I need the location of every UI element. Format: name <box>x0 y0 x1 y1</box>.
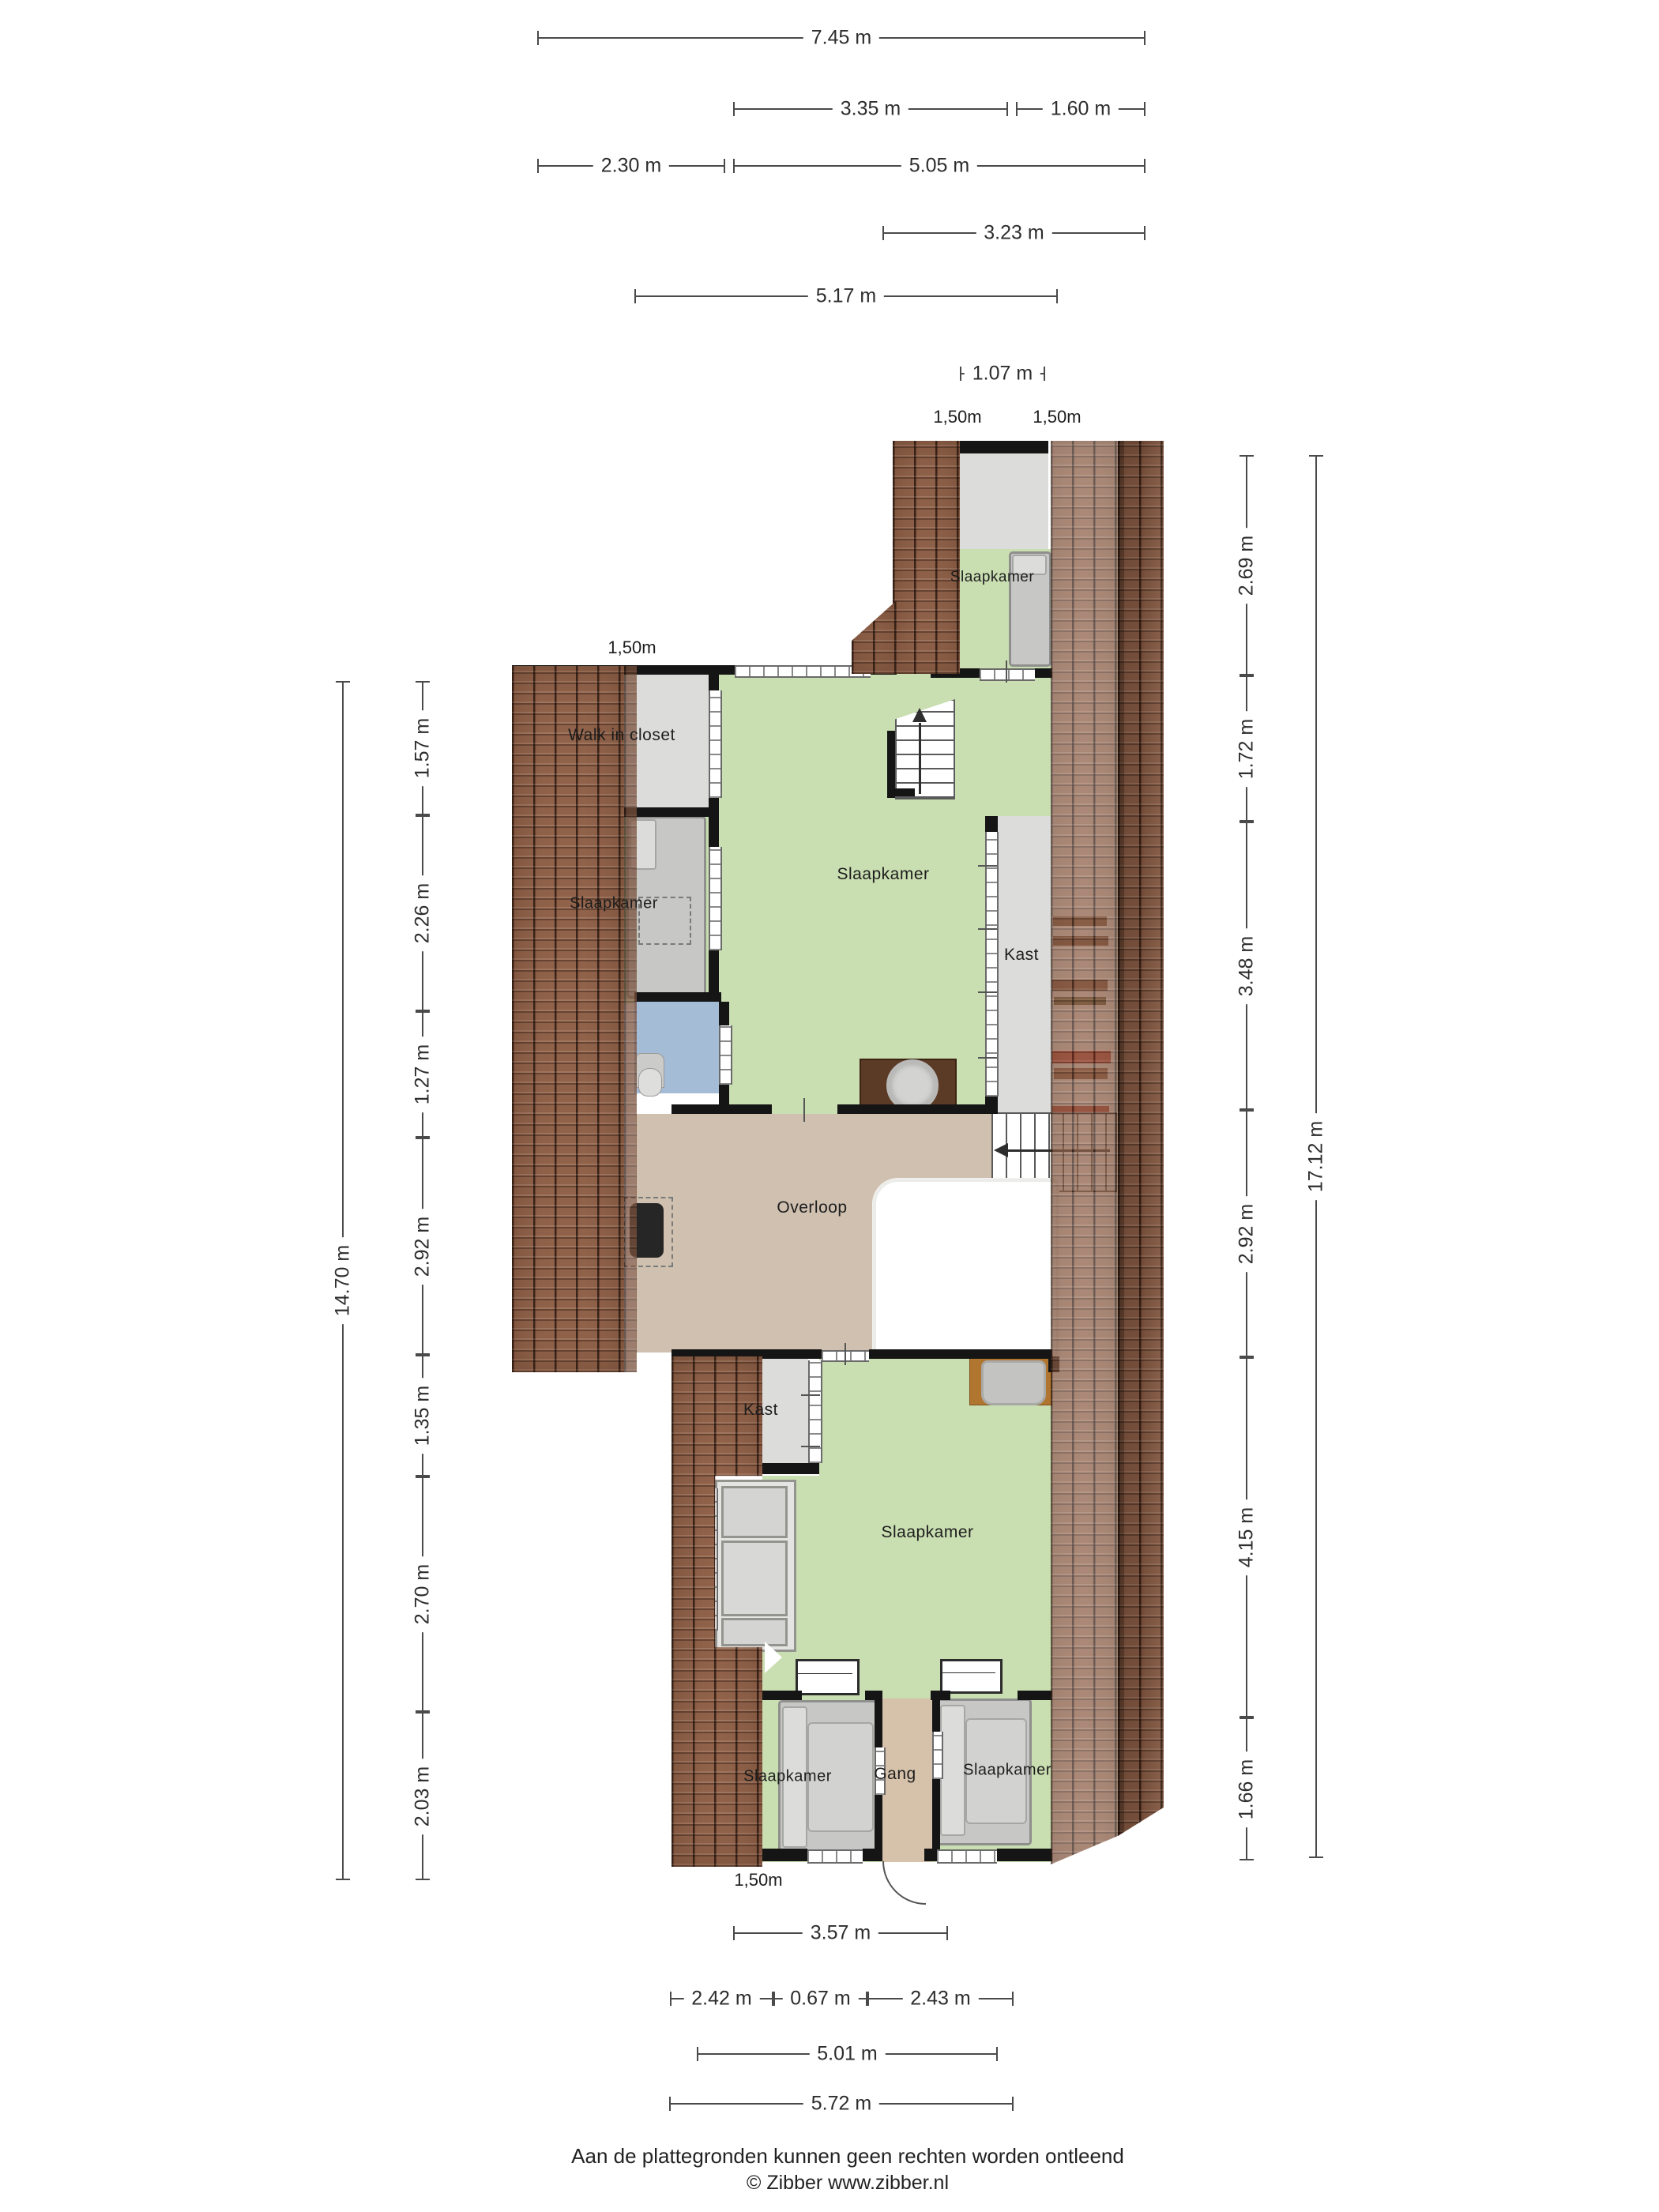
wall-segment <box>1035 668 1052 678</box>
wall-segment <box>869 1349 1052 1359</box>
roof-panel-right-inner <box>1051 441 1118 1864</box>
roof-panel-top-left <box>893 441 960 674</box>
room-label-slaapkamer-center: Slaapkamer <box>837 865 929 884</box>
wardrobe-shelf <box>721 1540 788 1616</box>
wall-segment <box>709 798 719 847</box>
window <box>937 1849 997 1864</box>
room-label-slaapkamer-lower: Slaapkamer <box>881 1523 973 1542</box>
wall-segment <box>997 1849 1052 1861</box>
room-label-gang: Gang <box>874 1765 916 1784</box>
room-label-walk-in-closet: Walk in closet <box>568 726 675 745</box>
door-tick <box>801 1446 820 1447</box>
door-tick <box>845 1343 846 1365</box>
window <box>709 847 722 950</box>
dresser-white <box>940 1659 1003 1694</box>
dresser-divider <box>798 1673 852 1674</box>
room-label-slaapkamer-bottom-left: Slaapkamer <box>743 1768 832 1786</box>
wall-segment <box>895 788 915 796</box>
room-label-kast-center: Kast <box>1004 946 1039 965</box>
wall-segment <box>887 731 895 798</box>
door-tick <box>1006 660 1007 683</box>
door-tick <box>978 865 997 867</box>
door-tick <box>803 1098 805 1122</box>
room-label-slaapkamer-top: Slaapkamer <box>950 569 1034 586</box>
stairwell-void <box>873 1179 1059 1356</box>
roof-panel-left <box>512 666 624 1372</box>
wall-segment <box>671 1104 772 1114</box>
wall-segment <box>624 807 719 817</box>
wall-segment <box>985 816 998 832</box>
door-swing-arc <box>882 1861 926 1905</box>
floor-slaapkamer-center <box>715 674 1051 816</box>
closet-sliding-door <box>808 1360 822 1463</box>
wall-segment <box>1018 1691 1052 1700</box>
room-label-slaapkamer-bottom-right: Slaapkamer <box>963 1762 1051 1780</box>
door-fold-marker <box>765 1642 782 1673</box>
dresser-white <box>796 1659 860 1695</box>
stair-arrow-left <box>994 1143 1008 1157</box>
wall-segment <box>837 1104 990 1114</box>
wall-segment <box>875 1692 882 1747</box>
door-tick <box>978 1057 997 1059</box>
room-label-slaapkamer-left: Slaapkamer <box>570 895 658 913</box>
door-tick <box>801 1394 820 1396</box>
stair-arrow-shaft <box>919 723 921 794</box>
door-tick <box>978 991 997 993</box>
footer-line2: © Zibber www.zibber.nl <box>453 2172 1243 2195</box>
wall-segment <box>719 1002 729 1025</box>
wall-segment <box>757 1849 807 1861</box>
window <box>709 690 722 798</box>
wall-segment <box>863 1849 882 1861</box>
window <box>719 1025 732 1085</box>
room-label-kast-small: Kast <box>743 1401 778 1420</box>
floorplan-canvas: Slaapkamer Walk in closet Slaapkamer Sla… <box>0 0 1659 2212</box>
window <box>932 1732 943 1779</box>
wall-segment <box>932 1692 940 1732</box>
wall-segment <box>709 674 719 690</box>
roof-panel-corner <box>852 600 897 674</box>
wall-segment <box>757 1691 802 1700</box>
footer-line1: Aan de plattegronden kunnen geen rechten… <box>453 2144 1243 2169</box>
height-mark: 1,50m <box>734 1870 782 1890</box>
dresser-divider <box>942 1672 995 1673</box>
toilet-bowl <box>638 1068 662 1097</box>
window <box>980 668 1035 681</box>
wall-segment <box>634 992 721 1002</box>
window <box>807 1849 863 1864</box>
wall-segment <box>932 1779 940 1860</box>
wall-segment <box>960 441 1048 453</box>
wardrobe-shelf <box>721 1486 788 1538</box>
door-tick <box>978 928 997 930</box>
floor-kast-center <box>990 816 1051 1114</box>
washbasin <box>981 1360 1046 1405</box>
roof-panel-left-edge <box>624 666 637 1372</box>
room-label-overloop: Overloop <box>777 1198 847 1217</box>
height-mark: 1,50m <box>933 407 981 427</box>
height-mark: 1,50m <box>608 638 656 658</box>
floor-landing-top <box>960 453 1048 551</box>
footer-disclaimer: Aan de plattegronden kunnen geen rechten… <box>453 2144 1243 2195</box>
height-mark: 1,50m <box>1033 407 1081 427</box>
window <box>735 665 871 678</box>
wall-segment <box>762 1463 819 1474</box>
pillow <box>940 1705 965 1836</box>
wall-segment <box>985 1097 998 1114</box>
stair-arrow-up <box>912 708 927 722</box>
roof-panel-right-outer <box>1118 441 1164 1864</box>
